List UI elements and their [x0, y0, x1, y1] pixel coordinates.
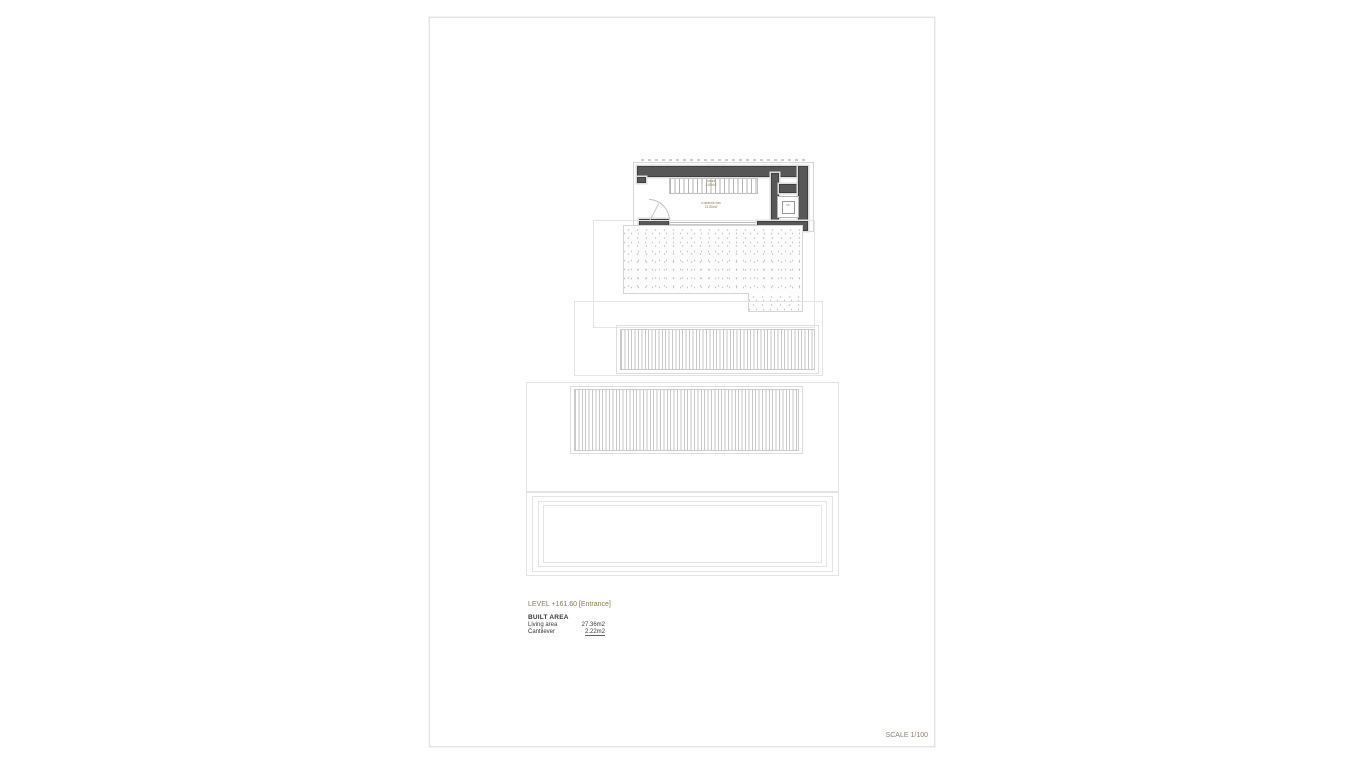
wall-shaft-divider [779, 184, 800, 193]
wall-top-left-stub [637, 177, 646, 183]
lift-label: lift [787, 204, 790, 207]
area-value: 2.22m2 [585, 629, 605, 636]
wall-top [637, 166, 808, 177]
roof-overhang-dashed-line [641, 159, 807, 161]
lift-cab: lift [782, 201, 795, 214]
louver-band-upper [620, 329, 815, 370]
room-area: 13.85m2 [692, 206, 731, 210]
area-value: 27.36m2 [582, 622, 605, 628]
drawing-sheet: Stairs 3.85m2 lift Entrance hall 13.85m2 [429, 17, 935, 747]
lift-shaft: lift [777, 196, 799, 218]
scale-label: SCALE 1/100 [886, 732, 928, 739]
staircase-area: 3.85m2 [692, 184, 731, 188]
level-title: LEVEL +161.60 [Entrance] [528, 601, 611, 608]
louver-band-lower [574, 389, 799, 451]
area-row-living: Living area 27.36m2 [528, 622, 605, 628]
page-background: Stairs 3.85m2 lift Entrance hall 13.85m2 [0, 0, 1366, 768]
built-area-heading: BUILT AREA [528, 614, 569, 621]
staircase-label: Stairs 3.85m2 [692, 180, 731, 188]
terrace-gravel-main [623, 225, 803, 293]
area-row-cantilever: Cantilever 2.22m2 [528, 629, 605, 636]
terrace-gravel-step-line [623, 293, 749, 294]
room-label: Entrance hall 13.85m2 [692, 202, 731, 210]
pool-outline-4 [543, 505, 822, 563]
area-label: Cantilever [528, 629, 555, 636]
area-label: Living area [528, 622, 557, 628]
